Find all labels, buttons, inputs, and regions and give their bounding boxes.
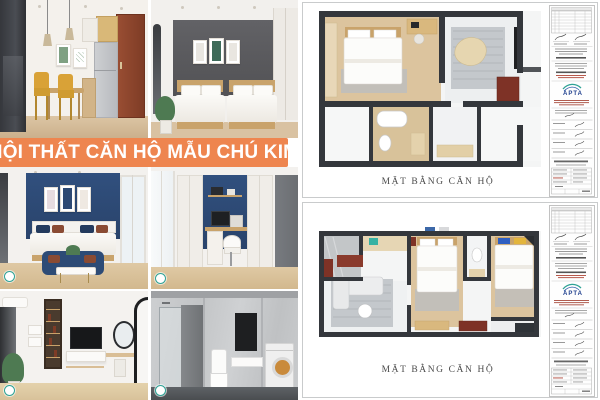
chair-leg — [70, 98, 72, 120]
tile-navy-bedroom — [0, 167, 148, 289]
ceiling-light — [120, 7, 123, 10]
chair-seat — [34, 88, 50, 96]
tile-seam — [261, 298, 263, 393]
ceiling-light — [217, 6, 220, 9]
ceiling-light — [84, 5, 87, 8]
ceiling-light — [253, 6, 256, 9]
watermark-logo — [155, 273, 166, 284]
floor-plan-drawing-2 — [311, 225, 549, 343]
wall-art — [60, 185, 75, 212]
desk-drawers — [207, 231, 223, 265]
chair-leg — [46, 96, 48, 120]
chair-seat — [224, 247, 241, 254]
plant — [155, 96, 175, 122]
wall-art — [44, 187, 58, 212]
vanity-mirror — [113, 321, 135, 349]
title-banner: NỘI THẤT CĂN HỘ MẪU CHÚ KIM — [0, 138, 288, 167]
wood-floor — [151, 122, 298, 138]
wall-shelf — [208, 195, 242, 197]
watermark-logo — [4, 271, 15, 282]
pendant-cord — [47, 0, 48, 34]
chair-leg — [59, 98, 61, 120]
wardrobe-right — [247, 175, 273, 275]
plan-title: MẶT BẰNG CĂN HỘ — [333, 365, 543, 375]
shower-head — [162, 302, 170, 304]
shelf-box — [227, 189, 235, 195]
vanity-counter — [106, 353, 134, 357]
fridge-split — [94, 70, 116, 71]
sofa-cushion — [48, 255, 60, 263]
wall-art — [73, 48, 87, 68]
arch-door — [134, 297, 148, 393]
wardrobe-left — [177, 175, 203, 275]
bed-base — [229, 122, 275, 129]
bottle-shelf — [44, 299, 62, 369]
pillow-navy — [36, 225, 50, 233]
black-mirror — [235, 313, 257, 351]
chair-seat — [58, 90, 74, 98]
wall-art — [226, 40, 240, 64]
door-handle — [120, 62, 122, 69]
upper-cabinet-white — [82, 18, 98, 42]
shower-partition — [181, 305, 203, 393]
upper-cabinet-wood — [96, 16, 118, 42]
table-leg — [48, 93, 50, 119]
shelf-printer — [211, 187, 223, 195]
tile-tv-wall — [0, 291, 148, 400]
wood-floor — [151, 267, 298, 289]
chair-leg — [35, 96, 37, 120]
window — [151, 171, 175, 275]
kitchen-cabinet — [82, 78, 96, 118]
wardrobe-seam — [259, 175, 260, 275]
wardrobe-seam — [285, 8, 286, 120]
title-block — [549, 205, 595, 397]
tv — [70, 327, 102, 349]
tile-bathroom — [151, 291, 298, 400]
wall-art — [193, 40, 207, 64]
chair-leg — [230, 252, 232, 266]
collage-page: NỘI THẤT CĂN HỘ MẪU CHÚ KIM — [0, 0, 600, 400]
table-leg — [60, 273, 61, 283]
banner-text: NỘI THẤT CĂN HỘ MẪU CHÚ KIM — [0, 142, 299, 164]
wood-shelf — [66, 366, 104, 368]
duvet — [227, 95, 277, 123]
table-flowers — [66, 245, 80, 255]
shower-pipe — [164, 303, 165, 325]
tile-dining-kitchen — [0, 0, 148, 138]
plan-sheet-1: MẶT BẰNG CĂN HỘ APTA — [302, 2, 598, 198]
monitor — [211, 211, 230, 226]
coffee-table — [56, 267, 96, 275]
fridge — [94, 42, 118, 118]
dark-floor — [151, 387, 298, 400]
wall-box-shelf — [28, 337, 42, 347]
bed-base — [177, 122, 223, 129]
wall-box-shelf — [28, 325, 42, 335]
wall-art — [209, 38, 224, 64]
plant — [2, 353, 24, 383]
sofa-cushion — [84, 255, 96, 263]
pendant-cord — [69, 0, 70, 28]
ceiling-light — [38, 5, 41, 8]
watermark-logo — [155, 385, 166, 396]
plan-title: MẶT BẰNG CĂN HỘ — [333, 177, 543, 187]
pendant-lamp — [65, 28, 74, 40]
table-leg — [78, 93, 80, 119]
ceiling-light — [181, 6, 184, 9]
washing-machine — [265, 343, 294, 389]
wardrobe-glass — [3, 56, 23, 116]
vanity-stool — [114, 359, 126, 377]
window-mullion — [161, 171, 162, 275]
table-leg — [88, 273, 89, 283]
floating-cabinet — [66, 351, 106, 362]
door-dark — [275, 175, 298, 275]
tile-study-nook — [151, 167, 298, 289]
watermark-logo — [4, 385, 15, 396]
apta-logo: APTA — [553, 291, 593, 297]
tile-twin-bedroom — [151, 0, 298, 138]
bedroom1-furniture — [411, 227, 459, 311]
window — [120, 175, 146, 269]
pillow-navy — [80, 225, 94, 233]
title-block — [549, 5, 595, 197]
window-mullion — [132, 175, 133, 269]
chair-back — [58, 74, 73, 90]
wardrobe-seam — [189, 175, 190, 275]
ceiling-strip — [151, 291, 298, 298]
wood-floor — [0, 383, 148, 400]
duvet — [175, 95, 225, 123]
floor-plan-drawing-1 — [311, 7, 549, 173]
plan-sheet-2: MẶT BẰNG CĂN HỘ APTA — [302, 202, 598, 398]
shower-glass — [159, 307, 183, 395]
wall-art — [56, 44, 71, 66]
wall-art — [77, 187, 91, 212]
wall-shelf — [231, 357, 263, 367]
pillow-rust — [52, 225, 64, 233]
tile-seam — [203, 298, 205, 393]
wardrobe-edge — [0, 173, 8, 273]
chair-back — [34, 72, 49, 88]
pendant-lamp — [43, 34, 52, 46]
apta-logo: APTA — [553, 91, 593, 97]
plant-pot — [160, 120, 172, 134]
pillow-rust — [96, 225, 108, 233]
